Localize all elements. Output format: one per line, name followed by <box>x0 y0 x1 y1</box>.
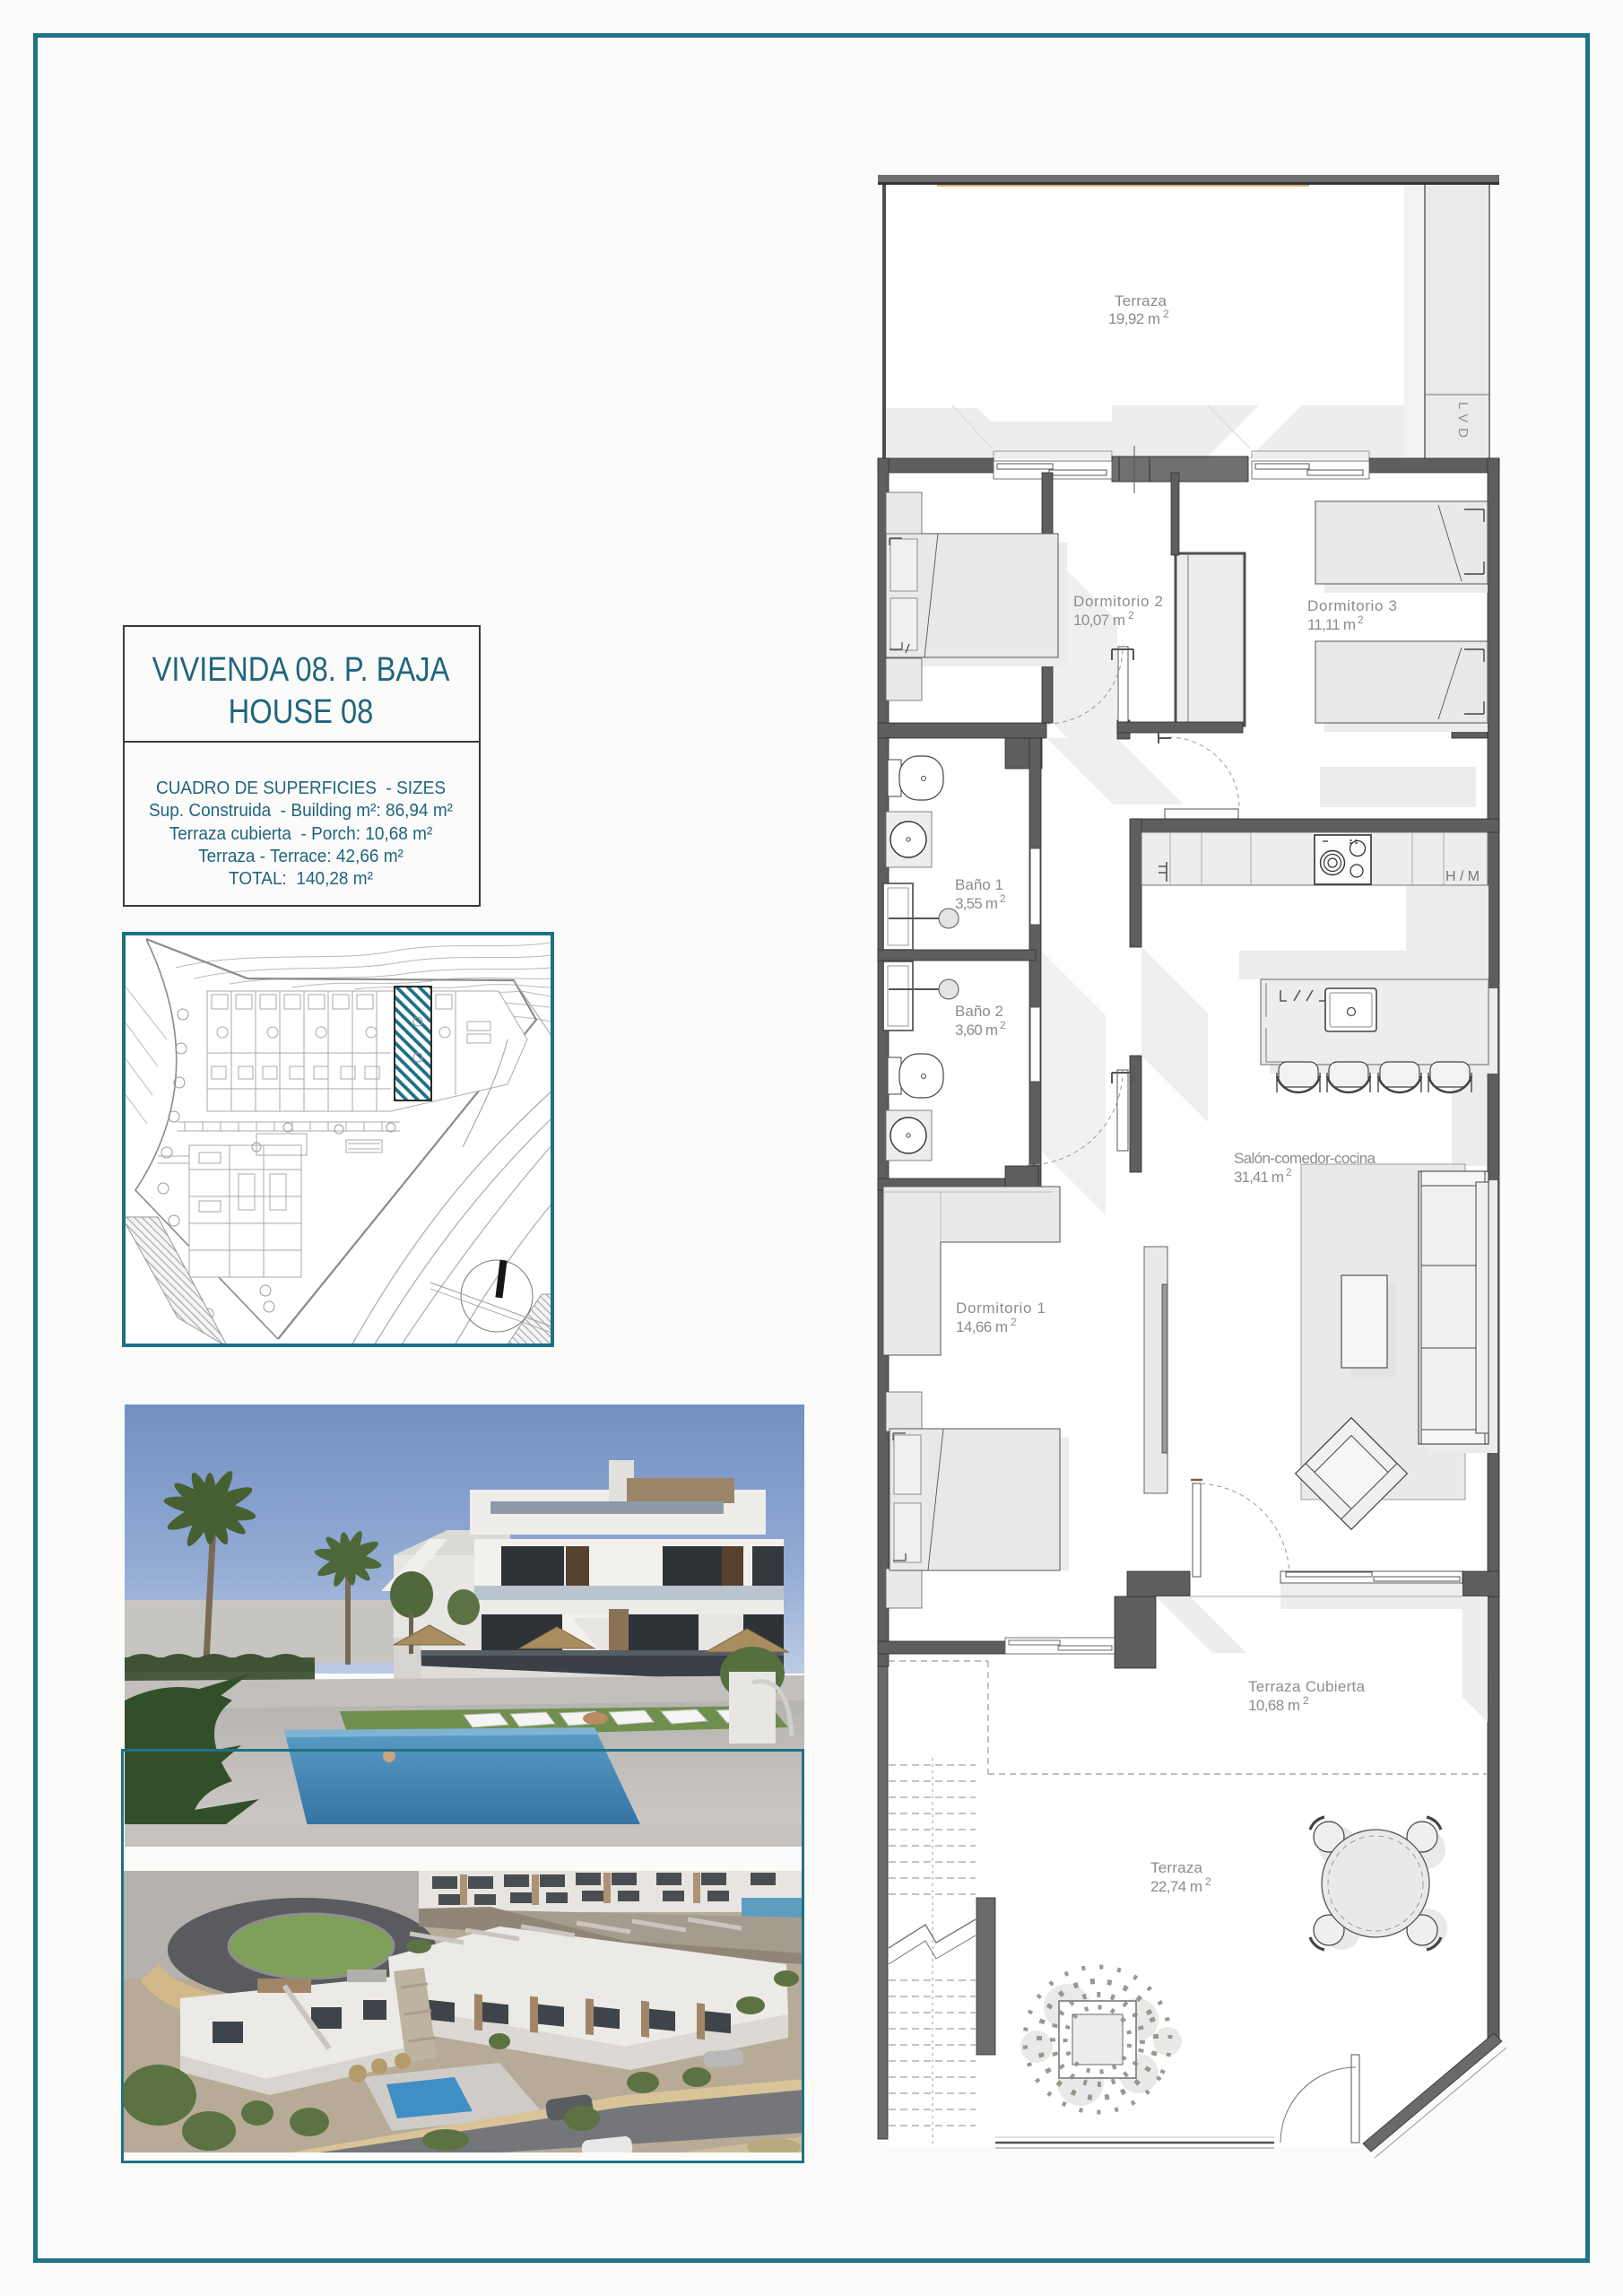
svg-text:2: 2 <box>1000 892 1006 905</box>
svg-text:2: 2 <box>1303 1694 1309 1707</box>
svg-text:Terraza: Terraza <box>1115 292 1167 309</box>
svg-text:Dormitorio 1: Dormitorio 1 <box>956 1300 1046 1317</box>
svg-text:Dormitorio 2: Dormitorio 2 <box>1073 593 1163 610</box>
svg-text:LVD: LVD <box>1455 402 1471 438</box>
svg-text:2: 2 <box>1128 609 1134 622</box>
svg-text:11,11 m: 11,11 m <box>1307 616 1356 633</box>
svg-text:Baño 2: Baño 2 <box>955 1003 1003 1020</box>
svg-text:Salón-comedor-cocina: Salón-comedor-cocina <box>1234 1150 1376 1167</box>
svg-text:10,07 m: 10,07 m <box>1073 612 1125 629</box>
svg-text:Terraza: Terraza <box>1150 1859 1203 1876</box>
svg-text:H/M: H/M <box>1445 869 1480 884</box>
svg-text:Dormitorio 3: Dormitorio 3 <box>1307 597 1397 614</box>
svg-text:2: 2 <box>1286 1166 1292 1178</box>
svg-text:2: 2 <box>1205 1875 1211 1888</box>
svg-text:3,55 m: 3,55 m <box>955 895 998 912</box>
svg-text:2: 2 <box>1163 308 1169 320</box>
svg-text:2: 2 <box>1358 613 1364 626</box>
svg-text:19,92 m: 19,92 m <box>1108 310 1160 327</box>
svg-text:22,74 m: 22,74 m <box>1150 1878 1202 1895</box>
svg-text:Baño 1: Baño 1 <box>955 876 1003 893</box>
svg-text:14,66 m: 14,66 m <box>956 1318 1008 1335</box>
svg-text:Terraza Cubierta: Terraza Cubierta <box>1248 1678 1366 1695</box>
svg-text:3,60 m: 3,60 m <box>955 1022 998 1039</box>
svg-text:2: 2 <box>1000 1019 1006 1031</box>
svg-text:10,68 m: 10,68 m <box>1248 1697 1300 1714</box>
svg-text:2: 2 <box>1011 1316 1017 1328</box>
svg-text:31,41 m: 31,41 m <box>1234 1169 1284 1186</box>
